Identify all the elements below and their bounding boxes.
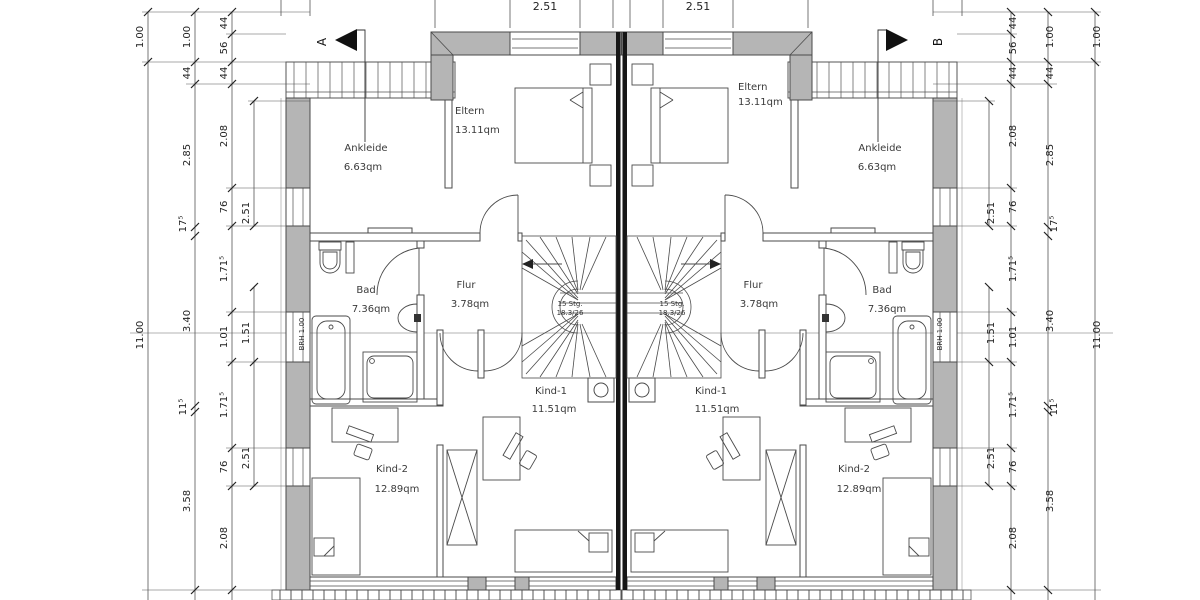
room-labels-left: Eltern 13.11qm Ankleide 6.63qm Bad 7.36q… bbox=[298, 106, 584, 495]
dim-value: 2.51 bbox=[241, 447, 252, 469]
room-area-eltern: 13.11qm bbox=[738, 97, 783, 108]
dim-value: 1.51 bbox=[986, 322, 997, 344]
room-label-eltern: Eltern bbox=[738, 82, 767, 93]
dim-value: 11.00 bbox=[135, 321, 146, 350]
dim-value: 44 bbox=[182, 67, 193, 80]
dim-value: 11⁵ bbox=[178, 399, 189, 416]
sill-label: BRH 1.00 bbox=[298, 318, 306, 351]
dim-value: 1.71⁵ bbox=[219, 392, 230, 418]
room-label-kind2: Kind-2 bbox=[376, 464, 408, 475]
dim-value: 44 bbox=[1045, 67, 1056, 80]
room-area-eltern: 13.11qm bbox=[455, 125, 500, 136]
dim-top-left: 2.51 bbox=[533, 0, 558, 13]
unit-left bbox=[130, 0, 622, 600]
room-label-ankleide: Ankleide bbox=[858, 143, 901, 154]
dim-value: 76 bbox=[219, 201, 230, 214]
dim-value: 3.40 bbox=[182, 310, 193, 332]
dim-value: 1.71⁵ bbox=[1008, 392, 1019, 418]
dim-value: 2.08 bbox=[1008, 527, 1019, 549]
dim-value: 56 bbox=[219, 42, 230, 55]
unit-right bbox=[622, 0, 1114, 600]
room-label-flur: Flur bbox=[457, 280, 477, 291]
stair-riserun-label: 18.3/26 bbox=[659, 309, 686, 317]
dim-value: 17⁵ bbox=[178, 216, 189, 233]
room-labels-right: Eltern 13.11qm Ankleide 6.63qm Bad 7.36q… bbox=[659, 82, 944, 495]
room-label-kind1: Kind-1 bbox=[695, 386, 727, 397]
room-label-eltern: Eltern bbox=[455, 106, 484, 117]
dim-value: 11.00 bbox=[1092, 321, 1103, 350]
dim-value: 3.58 bbox=[182, 490, 193, 512]
room-label-flur: Flur bbox=[744, 280, 764, 291]
room-area-bad: 7.36qm bbox=[868, 304, 906, 315]
room-label-bad: Bad bbox=[356, 285, 375, 296]
room-area-bad: 7.36qm bbox=[352, 304, 390, 315]
dim-value: 11⁵ bbox=[1049, 399, 1060, 416]
stair-steps-label: 15 Stg. bbox=[660, 300, 685, 308]
dim-top-right: 2.51 bbox=[686, 0, 711, 13]
room-label-kind1: Kind-1 bbox=[535, 386, 567, 397]
room-area-ankleide: 6.63qm bbox=[344, 162, 382, 173]
dim-value: 76 bbox=[1008, 461, 1019, 474]
room-label-ankleide: Ankleide bbox=[344, 143, 387, 154]
floor-plan-svg: 2.51 2.51 A B Eltern 13.11qm Ankleide 6.… bbox=[0, 0, 1200, 600]
stair-steps-label: 15 Stg. bbox=[558, 300, 583, 308]
dim-value: 76 bbox=[1008, 201, 1019, 214]
room-area-kind1: 11.51qm bbox=[695, 404, 740, 415]
floorplan-screenshot: 2.51 2.51 A B Eltern 13.11qm Ankleide 6.… bbox=[0, 0, 1200, 600]
dim-value: 2.08 bbox=[219, 527, 230, 549]
dim-value: 2.85 bbox=[1045, 144, 1056, 166]
room-area-ankleide: 6.63qm bbox=[858, 162, 896, 173]
section-label-a: A bbox=[315, 37, 329, 46]
section-label-b: B bbox=[931, 38, 945, 46]
dim-value: 44 bbox=[1008, 67, 1019, 80]
sill-label: BRH 1.00 bbox=[936, 318, 944, 351]
dim-texts-left: 1.00 11.00 1.00 44 2.85 17⁵ 3.40 11⁵ 3.5… bbox=[135, 17, 252, 550]
dim-value: 1.71⁵ bbox=[219, 256, 230, 282]
dim-value: 2.08 bbox=[1008, 125, 1019, 147]
room-area-kind2: 12.89qm bbox=[837, 484, 882, 495]
dim-value: 2.51 bbox=[241, 202, 252, 224]
room-label-bad: Bad bbox=[872, 285, 891, 296]
dim-value: 2.51 bbox=[986, 447, 997, 469]
room-area-kind1: 11.51qm bbox=[532, 404, 577, 415]
dim-value: 1.00 bbox=[182, 26, 193, 48]
dim-value: 2.08 bbox=[219, 125, 230, 147]
dim-value: 56 bbox=[1008, 42, 1019, 55]
dim-value: 1.00 bbox=[1045, 26, 1056, 48]
room-area-flur: 3.78qm bbox=[740, 299, 778, 310]
stair-riserun-label: 18.3/26 bbox=[557, 309, 584, 317]
dim-value: 1.01 bbox=[219, 326, 230, 348]
room-area-flur: 3.78qm bbox=[451, 299, 489, 310]
dim-texts-right: 1.00 11.00 1.00 44 2.85 17⁵ 3.40 11⁵ 3.5… bbox=[986, 17, 1103, 550]
dim-value: 2.85 bbox=[182, 144, 193, 166]
dim-value: 17⁵ bbox=[1049, 216, 1060, 233]
dim-value: 3.40 bbox=[1045, 310, 1056, 332]
room-label-kind2: Kind-2 bbox=[838, 464, 870, 475]
dim-value: 2.51 bbox=[986, 202, 997, 224]
dim-value: 1.71⁵ bbox=[1008, 256, 1019, 282]
dim-value: 1.00 bbox=[1092, 26, 1103, 48]
dim-value: 44 bbox=[219, 67, 230, 80]
dim-value: 44 bbox=[219, 17, 230, 30]
room-area-kind2: 12.89qm bbox=[375, 484, 420, 495]
dim-value: 1.51 bbox=[241, 322, 252, 344]
dim-value: 76 bbox=[219, 461, 230, 474]
dim-value: 3.58 bbox=[1045, 490, 1056, 512]
dim-value: 44 bbox=[1008, 17, 1019, 30]
dim-value: 1.01 bbox=[1008, 326, 1019, 348]
dim-value: 1.00 bbox=[135, 26, 146, 48]
